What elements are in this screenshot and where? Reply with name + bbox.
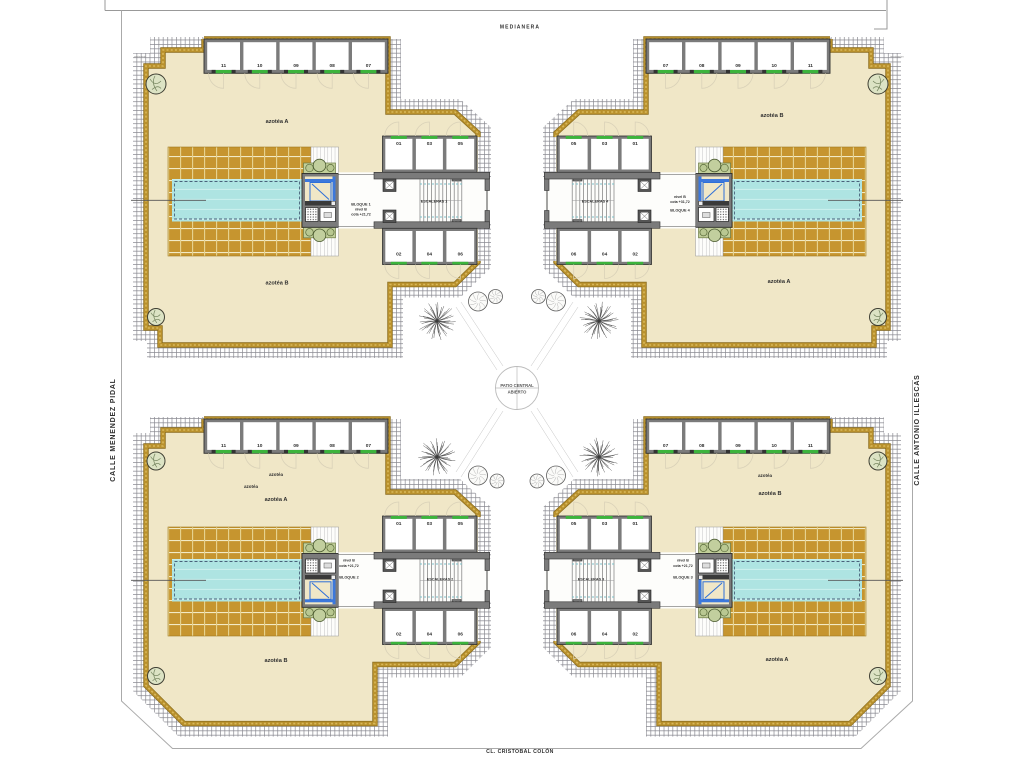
svg-text:11: 11	[221, 63, 226, 69]
svg-text:cota +21,72: cota +21,72	[673, 564, 692, 568]
svg-text:ESCALERAS 1: ESCALERAS 1	[421, 200, 448, 204]
svg-text:06: 06	[458, 632, 464, 638]
svg-text:09: 09	[293, 63, 299, 69]
svg-text:09: 09	[735, 63, 741, 69]
svg-text:02: 02	[633, 632, 639, 638]
svg-text:05: 05	[571, 141, 577, 147]
svg-text:07: 07	[663, 63, 669, 69]
svg-text:azotéa B: azotéa B	[760, 113, 783, 119]
svg-text:cota +21,72: cota +21,72	[351, 213, 370, 217]
svg-text:03: 03	[602, 141, 608, 147]
svg-text:02: 02	[396, 252, 402, 258]
svg-text:cota +31,72: cota +31,72	[670, 200, 689, 204]
svg-text:azotéa: azotéa	[758, 473, 773, 478]
svg-text:03: 03	[427, 521, 433, 527]
svg-text:10: 10	[257, 63, 263, 69]
svg-text:BLOQUE 3: BLOQUE 3	[673, 576, 692, 580]
svg-text:06: 06	[571, 252, 577, 258]
svg-text:azotéa A: azotéa A	[768, 279, 791, 285]
svg-text:04: 04	[602, 632, 608, 638]
svg-text:10: 10	[772, 63, 778, 69]
svg-text:11: 11	[221, 443, 226, 449]
svg-text:09: 09	[735, 443, 741, 449]
svg-text:08: 08	[330, 63, 336, 69]
svg-text:ESCALERAS 2: ESCALERAS 2	[427, 578, 454, 582]
svg-text:azotéa B: azotéa B	[265, 281, 288, 287]
svg-text:MEDIANERA: MEDIANERA	[500, 25, 540, 31]
svg-text:ESCALERAS 3: ESCALERAS 3	[578, 578, 605, 582]
svg-text:pavimento: pavimento	[134, 55, 147, 59]
svg-text:04: 04	[427, 632, 433, 638]
svg-text:02: 02	[396, 632, 402, 638]
svg-text:azotéa B: azotéa B	[758, 491, 781, 497]
svg-text:BLOQUE 1: BLOQUE 1	[351, 203, 370, 207]
svg-text:azotéa A: azotéa A	[766, 657, 789, 663]
svg-text:05: 05	[458, 521, 464, 527]
svg-text:05: 05	[571, 521, 577, 527]
svg-text:nivel B: nivel B	[343, 559, 355, 563]
svg-text:08: 08	[699, 443, 705, 449]
svg-text:azotéa A: azotéa A	[265, 497, 288, 503]
svg-text:04: 04	[602, 252, 608, 258]
svg-text:ESCALERAS 4: ESCALERAS 4	[582, 200, 609, 204]
svg-text:03: 03	[427, 141, 433, 147]
svg-text:CALLE MENENDEZ PIDAL: CALLE MENENDEZ PIDAL	[110, 378, 117, 482]
svg-text:05: 05	[458, 141, 464, 147]
svg-text:06: 06	[458, 252, 464, 258]
svg-text:08: 08	[699, 63, 705, 69]
svg-text:10: 10	[772, 443, 778, 449]
svg-text:ABIERTO: ABIERTO	[508, 390, 528, 395]
svg-text:azotéa A: azotéa A	[266, 119, 289, 125]
svg-text:azotéa B: azotéa B	[264, 658, 287, 664]
svg-text:03: 03	[602, 521, 608, 527]
svg-text:nivel B: nivel B	[355, 208, 367, 212]
svg-text:11: 11	[808, 443, 813, 449]
svg-text:CL. CRISTOBAL COLÓN: CL. CRISTOBAL COLÓN	[486, 747, 554, 755]
svg-text:BLOQUE 4: BLOQUE 4	[670, 209, 690, 213]
svg-text:nivel B: nivel B	[677, 559, 689, 563]
svg-text:01: 01	[396, 521, 402, 527]
svg-text:nivel B: nivel B	[674, 195, 686, 199]
svg-text:04: 04	[427, 252, 433, 258]
svg-text:07: 07	[366, 63, 372, 69]
svg-text:PATIO CENTRAL: PATIO CENTRAL	[500, 383, 534, 388]
svg-text:01: 01	[633, 521, 639, 527]
svg-text:cota +21,72: cota +21,72	[339, 564, 358, 568]
svg-text:01: 01	[633, 141, 639, 147]
svg-text:BLOQUE 2: BLOQUE 2	[339, 576, 358, 580]
svg-text:02: 02	[633, 252, 639, 258]
svg-text:07: 07	[366, 443, 372, 449]
svg-text:08: 08	[330, 443, 336, 449]
svg-text:terminacion: terminacion	[890, 55, 904, 59]
svg-text:10: 10	[257, 443, 263, 449]
svg-text:11: 11	[808, 63, 813, 69]
svg-text:azotéa: azotéa	[269, 472, 284, 477]
svg-text:CALLE ANTONIO ILLESCAS: CALLE ANTONIO ILLESCAS	[914, 374, 921, 485]
svg-text:azotéa: azotéa	[244, 484, 259, 489]
svg-text:06: 06	[571, 632, 577, 638]
svg-text:09: 09	[293, 443, 299, 449]
svg-text:07: 07	[663, 443, 669, 449]
svg-text:01: 01	[396, 141, 402, 147]
